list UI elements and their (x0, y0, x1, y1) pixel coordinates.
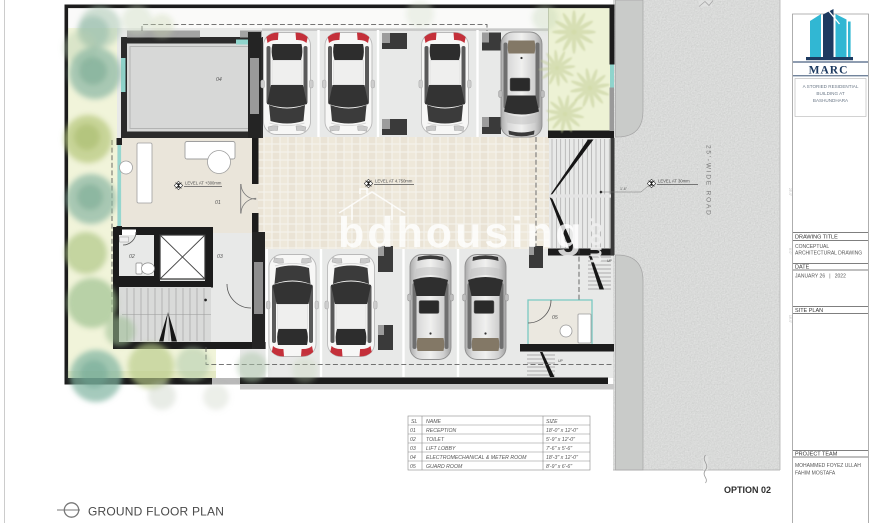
svg-text:UP: UP (558, 359, 564, 363)
svg-text:JANUARY 26 | 2022: JANUARY 26 | 2022 (795, 274, 846, 280)
svg-text:03: 03 (410, 446, 416, 452)
svg-text:LEVEL AT +300mm: LEVEL AT +300mm (185, 181, 222, 186)
svg-text:OPTION 02: OPTION 02 (724, 485, 771, 495)
svg-text:8'-0": 8'-0" (788, 248, 792, 254)
svg-text:8'-9" x 6'-6": 8'-9" x 6'-6" (546, 464, 573, 470)
svg-text:SL: SL (411, 419, 417, 425)
svg-text:RECEPTION: RECEPTION (426, 428, 457, 434)
svg-text:7'-6" x 5'-6": 7'-6" x 5'-6" (546, 446, 573, 452)
svg-text:25'-0": 25'-0" (788, 188, 792, 196)
svg-text:.com: .com (586, 217, 608, 264)
svg-text:5'-9" x 12'-0": 5'-9" x 12'-0" (546, 437, 576, 443)
svg-text:18'-0" x 12'-0": 18'-0" x 12'-0" (546, 428, 579, 434)
svg-text:LIFT LOBBY: LIFT LOBBY (426, 446, 456, 452)
svg-text:SIZE: SIZE (546, 419, 558, 425)
svg-text:18'-3" x 12'-0": 18'-3" x 12'-0" (546, 455, 579, 461)
svg-text:bdhousing: bdhousing (338, 209, 585, 257)
svg-text:MARC: MARC (809, 65, 849, 77)
svg-text:MOHAMMED FOYEZ ULLAH: MOHAMMED FOYEZ ULLAH (795, 463, 861, 469)
svg-text:02: 02 (410, 437, 416, 443)
svg-text:03: 03 (217, 254, 223, 260)
svg-text:FAHIM MOSTAFA: FAHIM MOSTAFA (795, 471, 836, 477)
svg-text:04: 04 (410, 455, 416, 461)
svg-text:TOILET: TOILET (426, 437, 445, 443)
svg-text:GROUND FLOOR PLAN: GROUND FLOOR PLAN (88, 505, 224, 519)
svg-text:04: 04 (216, 77, 222, 83)
svg-text:25'-WIDE ROAD: 25'-WIDE ROAD (705, 145, 712, 217)
svg-text:DATE: DATE (795, 265, 810, 271)
svg-text:PROJECT TEAM: PROJECT TEAM (795, 452, 838, 458)
svg-text:18'-0": 18'-0" (788, 315, 792, 323)
svg-text:05: 05 (410, 464, 416, 470)
svg-text:BASHUNDHARA: BASHUNDHARA (813, 98, 849, 103)
svg-text:SITE PLAN: SITE PLAN (795, 308, 823, 314)
svg-text:01: 01 (215, 200, 221, 206)
svg-text:LEVEL AT 30mm: LEVEL AT 30mm (658, 179, 690, 184)
svg-text:GUARD ROOM: GUARD ROOM (426, 464, 463, 470)
svg-text:01: 01 (410, 428, 416, 434)
svg-text:CONCEPTUAL: CONCEPTUAL (795, 244, 829, 250)
svg-text:BUILDING AT: BUILDING AT (816, 91, 844, 96)
svg-text:A STORIED RESIDENTIAL: A STORIED RESIDENTIAL (803, 84, 859, 89)
svg-text:LEVEL AT 4.750mm: LEVEL AT 4.750mm (375, 179, 413, 184)
svg-text:ARCHITECTURAL DRAWING: ARCHITECTURAL DRAWING (795, 251, 862, 257)
svg-text:NAME: NAME (426, 419, 442, 425)
svg-text:ELECTROMECHANICAL & METER ROOM: ELECTROMECHANICAL & METER ROOM (426, 455, 527, 461)
svg-text:1'-6": 1'-6" (620, 187, 628, 191)
svg-text:DRAWING TITLE: DRAWING TITLE (795, 235, 838, 241)
svg-text:02: 02 (129, 254, 135, 260)
svg-text:05: 05 (552, 315, 558, 321)
